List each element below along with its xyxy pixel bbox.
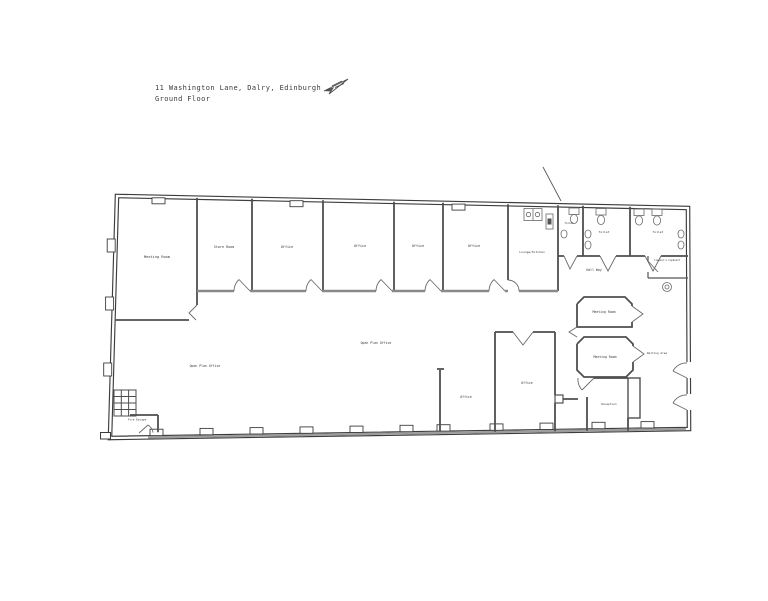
room-label-meeting-room-west: Meeting Room <box>144 255 170 259</box>
kitchen-fixtures <box>524 209 553 230</box>
room-label-meeting-room-a: Meeting Room <box>592 310 615 314</box>
wall-jog-office-e <box>555 395 563 403</box>
title-block: 11 Washington Lane, Dalry, Edinburgh Gro… <box>155 84 321 103</box>
doors-entrance <box>673 363 687 410</box>
room-label-lounge-kitchen: Lounge/Kitchen <box>519 250 544 254</box>
north-arrow-icon <box>324 79 348 94</box>
room-label-toilet-b: Toilet <box>599 230 610 234</box>
room-label-store-room: Store Room <box>214 245 234 249</box>
room-label-office-d: Office <box>468 244 480 248</box>
wc-icon <box>634 209 644 216</box>
window-band-south <box>148 429 686 437</box>
toilet-fixtures <box>561 208 684 292</box>
wc-icon <box>596 209 606 216</box>
room-label-meeting-room-b: Meeting Room <box>593 355 616 359</box>
room-label-open-plan-office-b: Open Plan Office <box>190 364 221 368</box>
walls-office-f <box>437 369 444 432</box>
room-label-cleaners-cupboard: Cleaner's Cupboard <box>654 259 680 262</box>
wall-return-sw <box>101 433 111 440</box>
door-office-d <box>489 280 505 292</box>
room-labels: Meeting Room Store Room Office Office Of… <box>128 221 681 422</box>
sink-icon <box>585 230 591 238</box>
door-swings <box>139 256 687 433</box>
title-address: 11 Washington Lane, Dalry, Edinburgh <box>155 84 321 92</box>
doors-meeting-rooms <box>569 306 644 362</box>
floor-plan-page: 11 Washington Lane, Dalry, Edinburgh Gro… <box>0 0 768 601</box>
leader-line <box>543 167 561 201</box>
title-floor: Ground Floor <box>155 95 210 103</box>
stair-fire-escape <box>114 390 136 416</box>
door-reception <box>578 378 594 390</box>
basin-icon <box>663 283 672 292</box>
doors-toilets <box>564 256 661 271</box>
door-office-e <box>513 332 533 345</box>
room-label-office-c: Office <box>412 244 424 248</box>
room-label-office-a: Office <box>281 245 293 249</box>
sink-icon <box>561 230 567 238</box>
walls-top-row <box>197 198 630 305</box>
door-office-a <box>306 280 322 292</box>
room-label-office-f: Office <box>460 395 472 399</box>
room-label-waiting-area: Waiting Area <box>647 351 668 355</box>
room-label-office-e: Office <box>521 381 533 385</box>
room-label-toilet-c: Toilet <box>653 230 664 234</box>
sink-icon <box>678 230 684 238</box>
door-meeting-room-west <box>189 305 197 320</box>
wc-icon <box>652 209 662 216</box>
room-label-fire-escape: Fire Escape <box>128 418 147 422</box>
walls-office-e <box>495 332 578 432</box>
floor-plan-svg: 11 Washington Lane, Dalry, Edinburgh Gro… <box>0 0 768 601</box>
door-store-room <box>234 280 250 292</box>
window-mullions-north-west <box>104 198 465 376</box>
room-label-office-b: Office <box>354 244 366 248</box>
room-label-open-plan-office-a: Open Plan Office <box>361 341 392 345</box>
door-office-b <box>376 280 392 292</box>
column-reception-east <box>628 378 640 418</box>
wc-icon <box>569 208 579 215</box>
room-label-hall-way: Hall Way <box>586 268 601 272</box>
room-label-toilet-a: Toilet <box>564 221 574 225</box>
door-lounge-kitchen <box>508 280 519 291</box>
room-label-reception: Reception <box>601 402 616 406</box>
door-office-c <box>425 280 441 292</box>
